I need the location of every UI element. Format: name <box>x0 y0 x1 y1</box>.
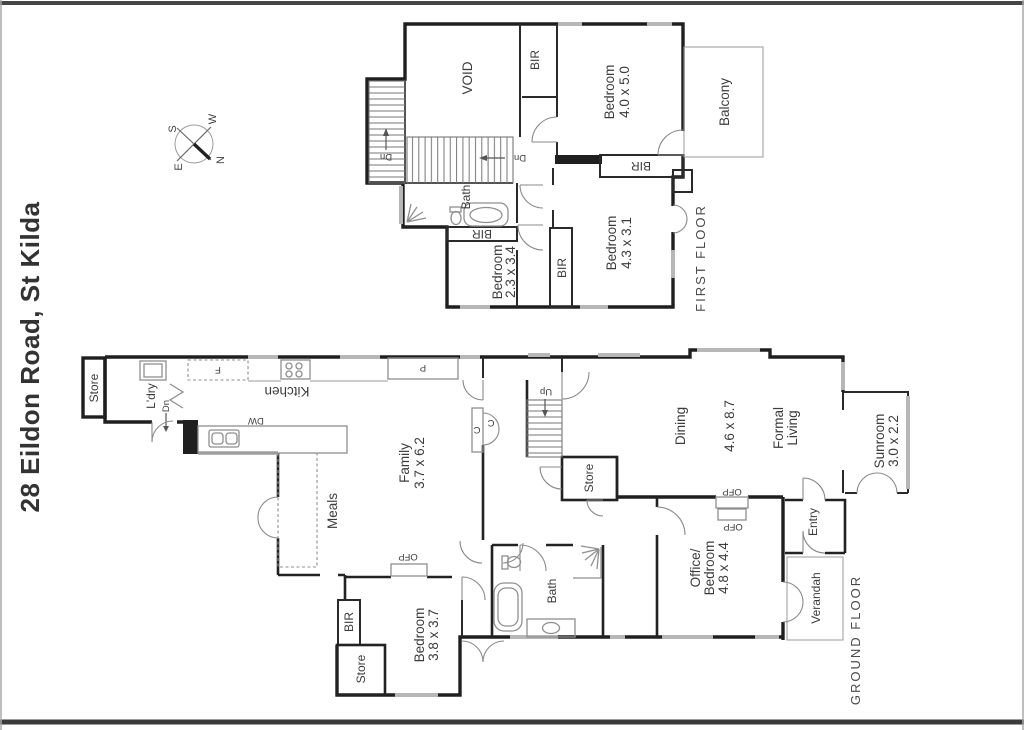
room-label-bath-ff: Bath <box>459 185 473 210</box>
dim-label-family: 3.7 x 6.2 <box>412 437 427 489</box>
room-label-balcony: Balcony <box>717 78 732 126</box>
dim-label-bedroom1: 4.0 x 5.0 <box>617 66 632 118</box>
dim-label-bedroom2: 2.3 x 3.4 <box>503 246 518 298</box>
compass-e: E <box>173 163 185 170</box>
compass-w: W <box>207 113 219 124</box>
stair-label-dn1: Dn <box>380 151 392 162</box>
room-label-bedroom-gf: Bedroom <box>412 608 427 663</box>
closet-label-c2: C <box>487 417 494 428</box>
closet-label-bir-mid: BIR <box>555 258 569 278</box>
first-floor-plan: VOID BIR Bedroom 4.0 x 5.0 Balcony BIR D… <box>367 24 763 312</box>
stair-label-up: Up <box>540 386 552 397</box>
dim-label-bedroom3: 4.3 x 3.1 <box>619 217 634 269</box>
room-label-store-top: Store <box>87 373 101 402</box>
appliance-label-fridge: F <box>215 364 221 375</box>
dim-label-bedroom-gf: 3.8 x 3.7 <box>426 609 441 661</box>
fireplace-label-ofp-office: OFP <box>723 521 743 532</box>
closet-label-bir-bath: BIR <box>472 227 492 241</box>
room-label-bedroom3: Bedroom <box>604 216 619 271</box>
appliance-label-dw: DW <box>248 415 264 426</box>
room-label-bedroom1: Bedroom <box>602 65 617 120</box>
ground-floor-plan: Store L'dry Dn F Kitchen DW P Family 3.7… <box>83 350 908 705</box>
page-title: 28 Eildon Road, St Kilda <box>15 201 45 512</box>
room-label-dining: Dining <box>673 407 688 445</box>
page-border <box>0 0 1024 730</box>
room-label-bath-gf: Bath <box>545 579 559 604</box>
closet-label-pantry: P <box>420 362 426 373</box>
room-label-formal-living-2: Living <box>785 410 800 445</box>
dim-label-office: 4.8 x 4.4 <box>716 542 731 594</box>
fireplace-label-ofp-bedroom: OFP <box>398 551 418 562</box>
dim-label-dining-living: 4.6 x 8.7 <box>722 400 737 452</box>
room-label-office-1: Office/ <box>688 548 703 587</box>
bathroom-fixtures <box>407 203 508 226</box>
ground-stairs-icon <box>527 399 562 457</box>
closet-label-c1: C <box>473 424 480 435</box>
floor-label-first: FIRST FLOOR <box>693 204 708 312</box>
dim-label-sunroom: 3.0 x 2.2 <box>886 415 901 467</box>
room-label-formal-living-1: Formal <box>771 407 786 449</box>
floor-plan: 28 Eildon Road, St Kilda S W E N <box>0 0 1024 730</box>
meals-area-outline <box>278 453 317 567</box>
room-label-laundry: L'dry <box>144 383 158 409</box>
room-label-kitchen: Kitchen <box>264 384 309 399</box>
closet-label-bir-gf: BIR <box>342 612 356 632</box>
fireplace-label-ofp-dining: OFP <box>722 486 742 497</box>
first-floor-doors <box>518 117 687 250</box>
closet-label-bir-bed1: BIR <box>631 159 651 173</box>
floor-label-ground: GROUND FLOOR <box>848 575 863 705</box>
room-label-sunroom: Sunroom <box>872 414 887 469</box>
compass-n: N <box>215 156 227 164</box>
compass-s: S <box>167 125 179 132</box>
ground-floor-labels: Store L'dry Dn F Kitchen DW P Family 3.7… <box>87 362 901 705</box>
floorplan-page: 28 Eildon Road, St Kilda S W E N <box>0 0 1024 730</box>
room-label-store-bed: Store <box>354 654 368 683</box>
stair-label-dn2: Dn <box>514 152 526 163</box>
compass-icon: S W E N <box>167 113 227 170</box>
room-label-verandah: Verandah <box>809 572 823 623</box>
room-label-entry: Entry <box>806 508 820 536</box>
room-label-meals: Meals <box>325 493 340 529</box>
stairs-icon <box>369 81 513 183</box>
room-label-family: Family <box>397 443 412 483</box>
closet-label-bir-hall: BIR <box>528 50 542 70</box>
room-label-store-stairs: Store <box>582 463 596 492</box>
room-label-office-2: Bedroom <box>702 541 717 596</box>
stair-label-dn-laundry: Dn <box>161 400 172 412</box>
room-label-void: VOID <box>460 61 475 94</box>
